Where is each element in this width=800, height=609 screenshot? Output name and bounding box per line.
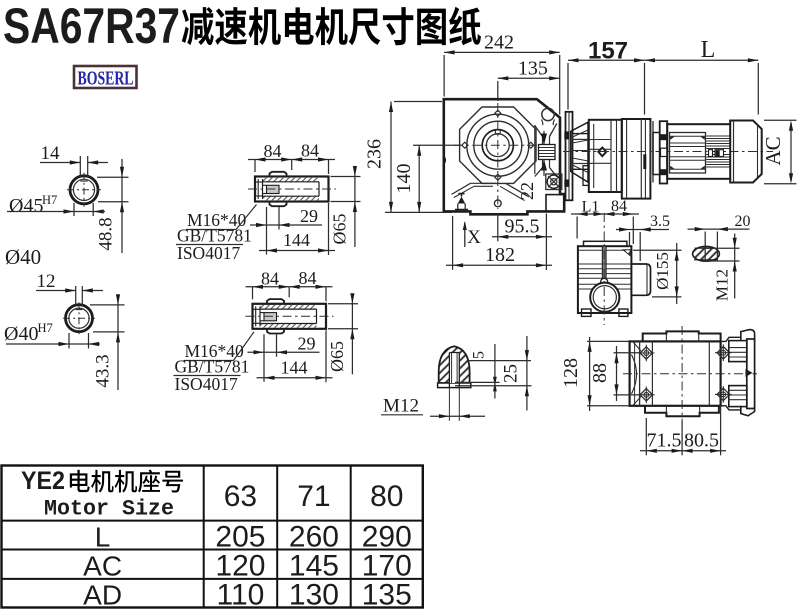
- svg-text:Ø45: Ø45: [9, 195, 43, 217]
- svg-text:25: 25: [501, 364, 522, 383]
- svg-text:SA67R37: SA67R37: [3, 0, 180, 54]
- svg-text:5: 5: [471, 351, 488, 359]
- svg-text:128: 128: [560, 358, 582, 388]
- svg-text:80: 80: [370, 480, 403, 513]
- svg-text:63: 63: [224, 480, 257, 513]
- svg-text:M12: M12: [713, 269, 732, 301]
- svg-text:43.3: 43.3: [93, 354, 114, 387]
- svg-text:236: 236: [364, 139, 386, 169]
- svg-text:AC: AC: [761, 136, 785, 165]
- svg-text:YE2: YE2: [21, 467, 65, 495]
- svg-text:242: 242: [484, 32, 514, 54]
- svg-text:29: 29: [300, 206, 318, 226]
- svg-text:BOSERL: BOSERL: [78, 68, 134, 90]
- svg-text:Ø155: Ø155: [653, 252, 672, 290]
- svg-text:29: 29: [298, 334, 316, 354]
- svg-text:L: L: [95, 522, 111, 553]
- svg-text:H7: H7: [42, 193, 57, 207]
- svg-text:20: 20: [735, 213, 751, 230]
- svg-text:95.5: 95.5: [505, 216, 540, 238]
- svg-text:Motor Size: Motor Size: [44, 497, 174, 522]
- svg-text:12: 12: [37, 271, 56, 292]
- svg-text:144: 144: [281, 358, 308, 378]
- svg-text:Ø40: Ø40: [4, 323, 38, 345]
- svg-text:48.8: 48.8: [96, 217, 117, 250]
- svg-text:Ø65: Ø65: [327, 341, 347, 372]
- svg-text:110: 110: [217, 579, 265, 609]
- svg-text:ISO4017: ISO4017: [175, 374, 238, 394]
- svg-text:X: X: [467, 227, 481, 248]
- svg-text:182: 182: [485, 244, 515, 266]
- svg-text:84: 84: [261, 268, 279, 288]
- svg-text:84: 84: [299, 268, 317, 288]
- svg-text:14: 14: [41, 143, 61, 164]
- svg-text:71: 71: [297, 480, 330, 513]
- svg-text:M12: M12: [383, 396, 419, 417]
- svg-text:ISO4017: ISO4017: [177, 243, 240, 263]
- svg-text:AC: AC: [83, 551, 122, 582]
- svg-text:71.5: 71.5: [647, 430, 682, 452]
- svg-text:140: 140: [393, 164, 415, 194]
- svg-text:22: 22: [517, 182, 537, 200]
- svg-text:3.5: 3.5: [650, 213, 670, 230]
- svg-text:L: L: [701, 37, 716, 63]
- svg-text:Ø65: Ø65: [330, 214, 350, 245]
- svg-text:H7: H7: [38, 321, 53, 335]
- svg-text:88: 88: [589, 363, 611, 383]
- svg-text:80.5: 80.5: [684, 430, 719, 452]
- svg-text:135: 135: [362, 579, 412, 609]
- svg-text:135: 135: [518, 58, 548, 80]
- svg-text:130: 130: [289, 579, 339, 609]
- svg-text:AD: AD: [83, 580, 122, 609]
- svg-text:84: 84: [264, 141, 282, 161]
- svg-text:144: 144: [283, 230, 310, 250]
- svg-text:84: 84: [301, 141, 319, 161]
- svg-text:Ø40: Ø40: [5, 245, 41, 269]
